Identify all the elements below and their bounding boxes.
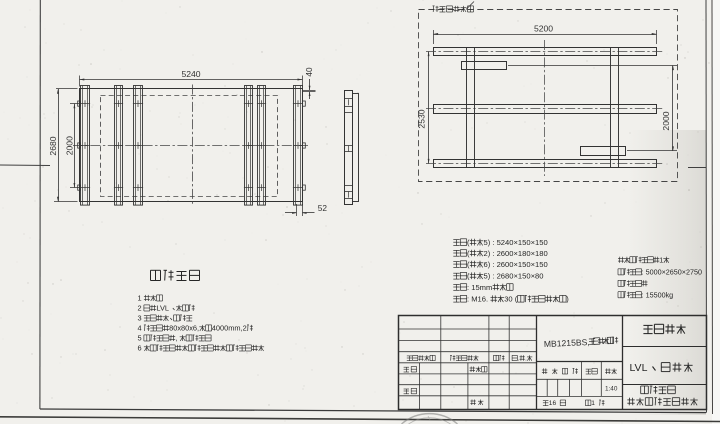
svg-text:: 15mm: : 15mm (467, 283, 492, 292)
svg-text:4000mm,2: 4000mm,2 (212, 324, 247, 333)
svg-text:3: 3 (138, 314, 142, 323)
svg-text:2530: 2530 (416, 109, 426, 128)
svg-text:80x80x6,: 80x80x6, (169, 324, 199, 333)
svg-text:: M16.: : M16. (467, 295, 488, 304)
svg-text:1:40: 1:40 (605, 386, 618, 393)
svg-text:5: 5 (138, 334, 142, 343)
svg-text:1: 1 (659, 255, 663, 264)
svg-text:4: 4 (138, 324, 142, 333)
svg-text:2000: 2000 (661, 111, 671, 130)
svg-text:LVL: LVL (156, 304, 169, 313)
svg-text:40: 40 (304, 67, 314, 77)
svg-text:2000: 2000 (65, 136, 75, 155)
svg-text:52: 52 (318, 203, 328, 213)
svg-text:: 15500kg: : 15500kg (642, 290, 674, 299)
svg-text:2: 2 (138, 304, 142, 313)
svg-text:1: 1 (138, 294, 142, 303)
svg-text:5200: 5200 (534, 23, 553, 33)
svg-text:5) : 5240×150×150: 5) : 5240×150×150 (484, 238, 548, 247)
svg-text:2) : 2600×180×180: 2) : 2600×180×180 (484, 249, 548, 258)
svg-text:5) : 2680×150×80: 5) : 2680×150×80 (484, 272, 544, 281)
svg-text:2680: 2680 (48, 136, 58, 155)
svg-text:6: 6 (138, 344, 142, 353)
svg-text:16: 16 (549, 400, 557, 407)
svg-text:6) : 2600×150×150: 6) : 2600×150×150 (484, 260, 548, 269)
svg-text:LVL: LVL (630, 362, 648, 374)
svg-text:,: , (175, 334, 177, 343)
svg-text:1: 1 (591, 400, 595, 407)
svg-text:: 5000×2650×2750: : 5000×2650×2750 (642, 268, 702, 277)
svg-text:MB1215BS,: MB1215BS, (544, 337, 590, 349)
svg-text:30 (: 30 ( (504, 295, 518, 304)
svg-text:5240: 5240 (181, 69, 200, 79)
